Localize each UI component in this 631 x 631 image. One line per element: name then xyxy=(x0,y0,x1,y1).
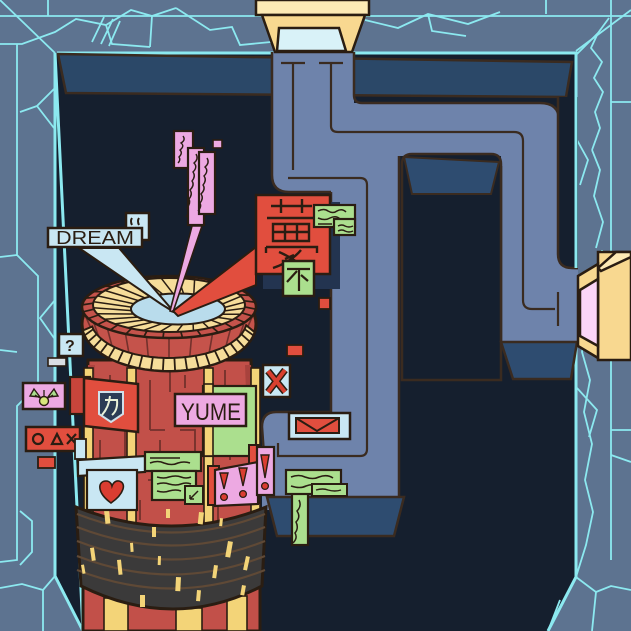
svg-text:?: ? xyxy=(65,338,75,355)
svg-text:YUME: YUME xyxy=(181,399,241,426)
svg-text:DREAM: DREAM xyxy=(56,228,134,248)
